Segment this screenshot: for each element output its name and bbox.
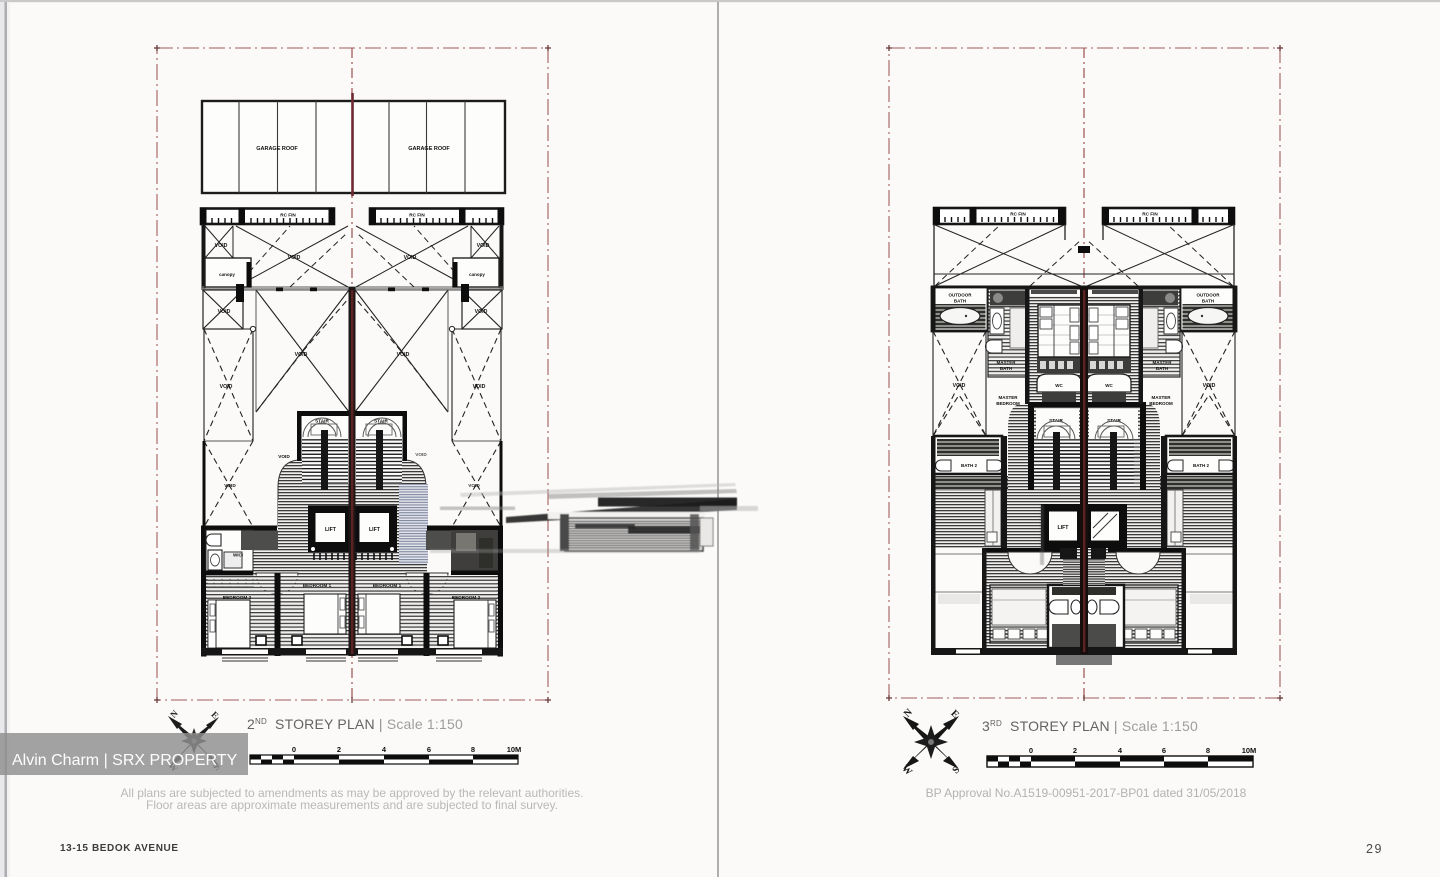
svg-text:VOID: VOID (220, 384, 233, 390)
svg-text:RC FIN: RC FIN (280, 213, 296, 218)
svg-text:LIFT: LIFT (1058, 525, 1070, 531)
svg-text:BEDROOM: BEDROOM (1149, 401, 1173, 406)
svg-text:BATH: BATH (1000, 366, 1012, 371)
svg-text:BEDROOM 2: BEDROOM 2 (452, 595, 481, 600)
svg-text:Floor areas are approximate me: Floor areas are approximate measurements… (146, 798, 558, 812)
svg-text:BATH 2: BATH 2 (1193, 463, 1209, 468)
svg-text:VOID: VOID (475, 309, 488, 315)
svg-text:VOID: VOID (415, 452, 427, 457)
svg-text:MASTER: MASTER (1152, 395, 1172, 400)
svg-text:3RD STOREY PLAN | Scale 1:150: 3RD STOREY PLAN | Scale 1:150 (982, 718, 1198, 734)
svg-text:STAIR: STAIR (1107, 418, 1121, 423)
svg-text:OUTDOOR: OUTDOOR (949, 293, 973, 298)
svg-text:13-15 BEDOK AVENUE: 13-15 BEDOK AVENUE (60, 843, 179, 854)
svg-text:8: 8 (471, 745, 475, 754)
svg-text:0: 0 (1029, 746, 1033, 755)
svg-text:GARAGE ROOF: GARAGE ROOF (256, 146, 298, 152)
svg-text:VOID: VOID (215, 243, 228, 249)
svg-text:VOID: VOID (218, 309, 231, 315)
svg-text:0: 0 (292, 745, 296, 754)
svg-text:BATH 2: BATH 2 (961, 463, 977, 468)
svg-text:GARAGE ROOF: GARAGE ROOF (408, 146, 450, 152)
svg-text:VOID: VOID (1203, 383, 1216, 389)
svg-text:VOID: VOID (404, 255, 417, 261)
svg-text:BP Approval No.A1519-00951-201: BP Approval No.A1519-00951-2017-BP01 dat… (926, 786, 1247, 800)
svg-text:BATH: BATH (1202, 299, 1214, 304)
svg-text:canopy: canopy (469, 272, 485, 277)
svg-text:VOID: VOID (473, 384, 486, 390)
svg-text:MASTER: MASTER (997, 360, 1017, 365)
svg-text:8: 8 (1206, 746, 1210, 755)
svg-text:VOID: VOID (397, 352, 410, 358)
svg-text:VOID: VOID (278, 454, 290, 459)
svg-text:Alvin Charm | SRX PROPERTY: Alvin Charm | SRX PROPERTY (12, 752, 238, 769)
svg-text:MASTER: MASTER (999, 395, 1019, 400)
svg-text:LIFT: LIFT (369, 527, 381, 533)
svg-text:VOID: VOID (224, 483, 236, 488)
svg-text:BEDROOM 1: BEDROOM 1 (373, 583, 402, 588)
svg-text:MASTER: MASTER (1153, 360, 1173, 365)
svg-text:BEDROOM: BEDROOM (996, 401, 1020, 406)
svg-text:WICI: WICI (233, 553, 243, 558)
svg-text:BEDROOM 1: BEDROOM 1 (303, 583, 332, 588)
svg-text:RC FIN: RC FIN (1010, 212, 1026, 217)
svg-text:WC: WC (1105, 383, 1113, 388)
svg-text:10M: 10M (507, 745, 522, 754)
svg-text:VOID: VOID (953, 383, 966, 389)
svg-text:LIFT: LIFT (325, 527, 337, 533)
svg-text:VOID: VOID (468, 483, 480, 488)
svg-text:BATH: BATH (954, 299, 966, 304)
svg-text:RC FIN: RC FIN (409, 213, 425, 218)
svg-text:canopy: canopy (219, 272, 235, 277)
svg-text:BEDROOM 2: BEDROOM 2 (223, 595, 252, 600)
svg-text:2: 2 (1073, 746, 1077, 755)
svg-text:29: 29 (1366, 842, 1383, 856)
svg-text:VOID: VOID (288, 255, 301, 261)
svg-text:BATH: BATH (1156, 366, 1168, 371)
svg-text:VOID: VOID (477, 243, 490, 249)
svg-text:6: 6 (427, 745, 431, 754)
svg-text:10M: 10M (1242, 746, 1257, 755)
svg-text:OUTDOOR: OUTDOOR (1197, 293, 1221, 298)
svg-text:STAIR: STAIR (1049, 418, 1063, 423)
svg-text:2ND STOREY PLAN | Scale 1:150: 2ND STOREY PLAN | Scale 1:150 (247, 716, 463, 732)
svg-text:WC: WC (1055, 383, 1063, 388)
svg-text:RC FIN: RC FIN (1142, 212, 1158, 217)
svg-text:6: 6 (1162, 746, 1166, 755)
svg-text:2: 2 (337, 745, 341, 754)
svg-text:VOID: VOID (295, 352, 308, 358)
